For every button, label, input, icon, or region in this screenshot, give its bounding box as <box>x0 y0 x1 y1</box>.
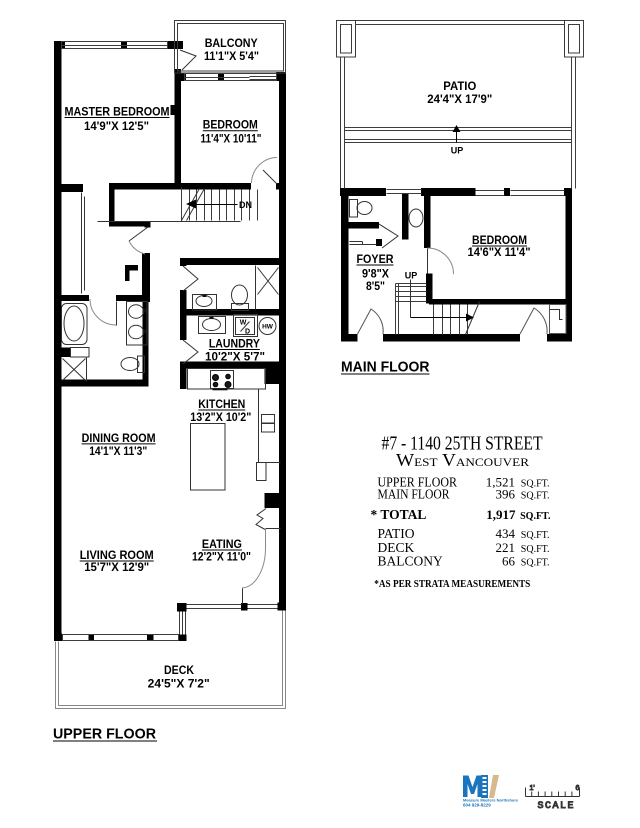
svg-text:14'6"X 11'4": 14'6"X 11'4" <box>468 247 531 259</box>
svg-text:9'8"X: 9'8"X <box>362 269 389 281</box>
svg-text:8'5": 8'5" <box>366 281 385 293</box>
svg-text:11'1"X 5'4": 11'1"X 5'4" <box>204 51 259 63</box>
svg-text:BALCONY: BALCONY <box>378 554 444 569</box>
svg-text:BEDROOM: BEDROOM <box>203 120 258 132</box>
svg-text:MAIN FLOOR: MAIN FLOOR <box>378 486 450 501</box>
svg-text:DN: DN <box>239 200 252 210</box>
svg-text:1': 1' <box>530 785 535 792</box>
svg-text:10'2"X 5'7": 10'2"X 5'7" <box>205 352 265 364</box>
svg-text:SQ.FT.: SQ.FT. <box>521 490 550 501</box>
svg-text:UPPER FLOOR: UPPER FLOOR <box>53 726 156 743</box>
svg-text:14'1"X 11'3": 14'1"X 11'3" <box>89 446 147 458</box>
svg-text:FOYER: FOYER <box>357 254 395 266</box>
svg-text:*AS PER STRATA MEASUREMENTS: *AS PER STRATA MEASUREMENTS <box>374 578 530 590</box>
svg-text:BEDROOM: BEDROOM <box>472 235 527 247</box>
svg-text:PATIO: PATIO <box>378 526 415 541</box>
svg-text:14'9"X 12'5": 14'9"X 12'5" <box>84 121 149 133</box>
svg-text:D: D <box>245 329 250 336</box>
svg-text:SCALE: SCALE <box>538 801 576 812</box>
svg-text:PATIO: PATIO <box>443 81 476 93</box>
svg-text:12'2"X 11'0": 12'2"X 11'0" <box>192 552 251 564</box>
svg-text:6: 6 <box>576 785 580 792</box>
svg-text:BALCONY: BALCONY <box>205 38 258 50</box>
svg-text:MASTER BEDROOM: MASTER BEDROOM <box>65 107 170 119</box>
svg-text:HW: HW <box>262 324 274 331</box>
svg-text:SQ.FT.: SQ.FT. <box>521 544 550 555</box>
svg-text:LIVING ROOM: LIVING ROOM <box>80 550 154 562</box>
svg-text:66: 66 <box>502 554 516 569</box>
svg-text:24'5"X 7'2": 24'5"X 7'2" <box>148 679 210 691</box>
svg-text:KITCHEN: KITCHEN <box>198 399 245 411</box>
svg-text:EATING: EATING <box>202 539 242 551</box>
svg-text:* TOTAL: * TOTAL <box>371 507 427 522</box>
svg-text:LAUNDRY: LAUNDRY <box>209 339 260 351</box>
svg-text:13'2"X 10'2": 13'2"X 10'2" <box>190 412 251 424</box>
svg-text:UP: UP <box>405 271 418 281</box>
svg-text:15'7"X 12'9": 15'7"X 12'9" <box>84 562 149 574</box>
svg-text:SQ.FT.: SQ.FT. <box>521 558 550 569</box>
svg-text:24'4"X 17'9": 24'4"X 17'9" <box>427 94 492 106</box>
svg-text:1,917: 1,917 <box>486 507 516 522</box>
svg-text:SQ.FT.: SQ.FT. <box>520 511 551 522</box>
svg-text:MAIN FLOOR: MAIN FLOOR <box>341 359 430 376</box>
svg-text:11'4"X 10'11": 11'4"X 10'11" <box>201 134 262 146</box>
svg-text:SQ.FT.: SQ.FT. <box>521 530 550 541</box>
svg-text:DECK: DECK <box>164 665 195 677</box>
svg-text:SQ.FT.: SQ.FT. <box>521 479 550 490</box>
svg-text:604 929-8229: 604 929-8229 <box>463 803 491 808</box>
svg-text:DINING ROOM: DINING ROOM <box>82 433 156 445</box>
svg-text:434: 434 <box>496 526 516 541</box>
svg-text:396: 396 <box>496 486 516 501</box>
svg-text:West Vancouver: West Vancouver <box>396 450 529 470</box>
svg-text:UP: UP <box>451 146 464 156</box>
svg-text:W: W <box>240 320 247 327</box>
